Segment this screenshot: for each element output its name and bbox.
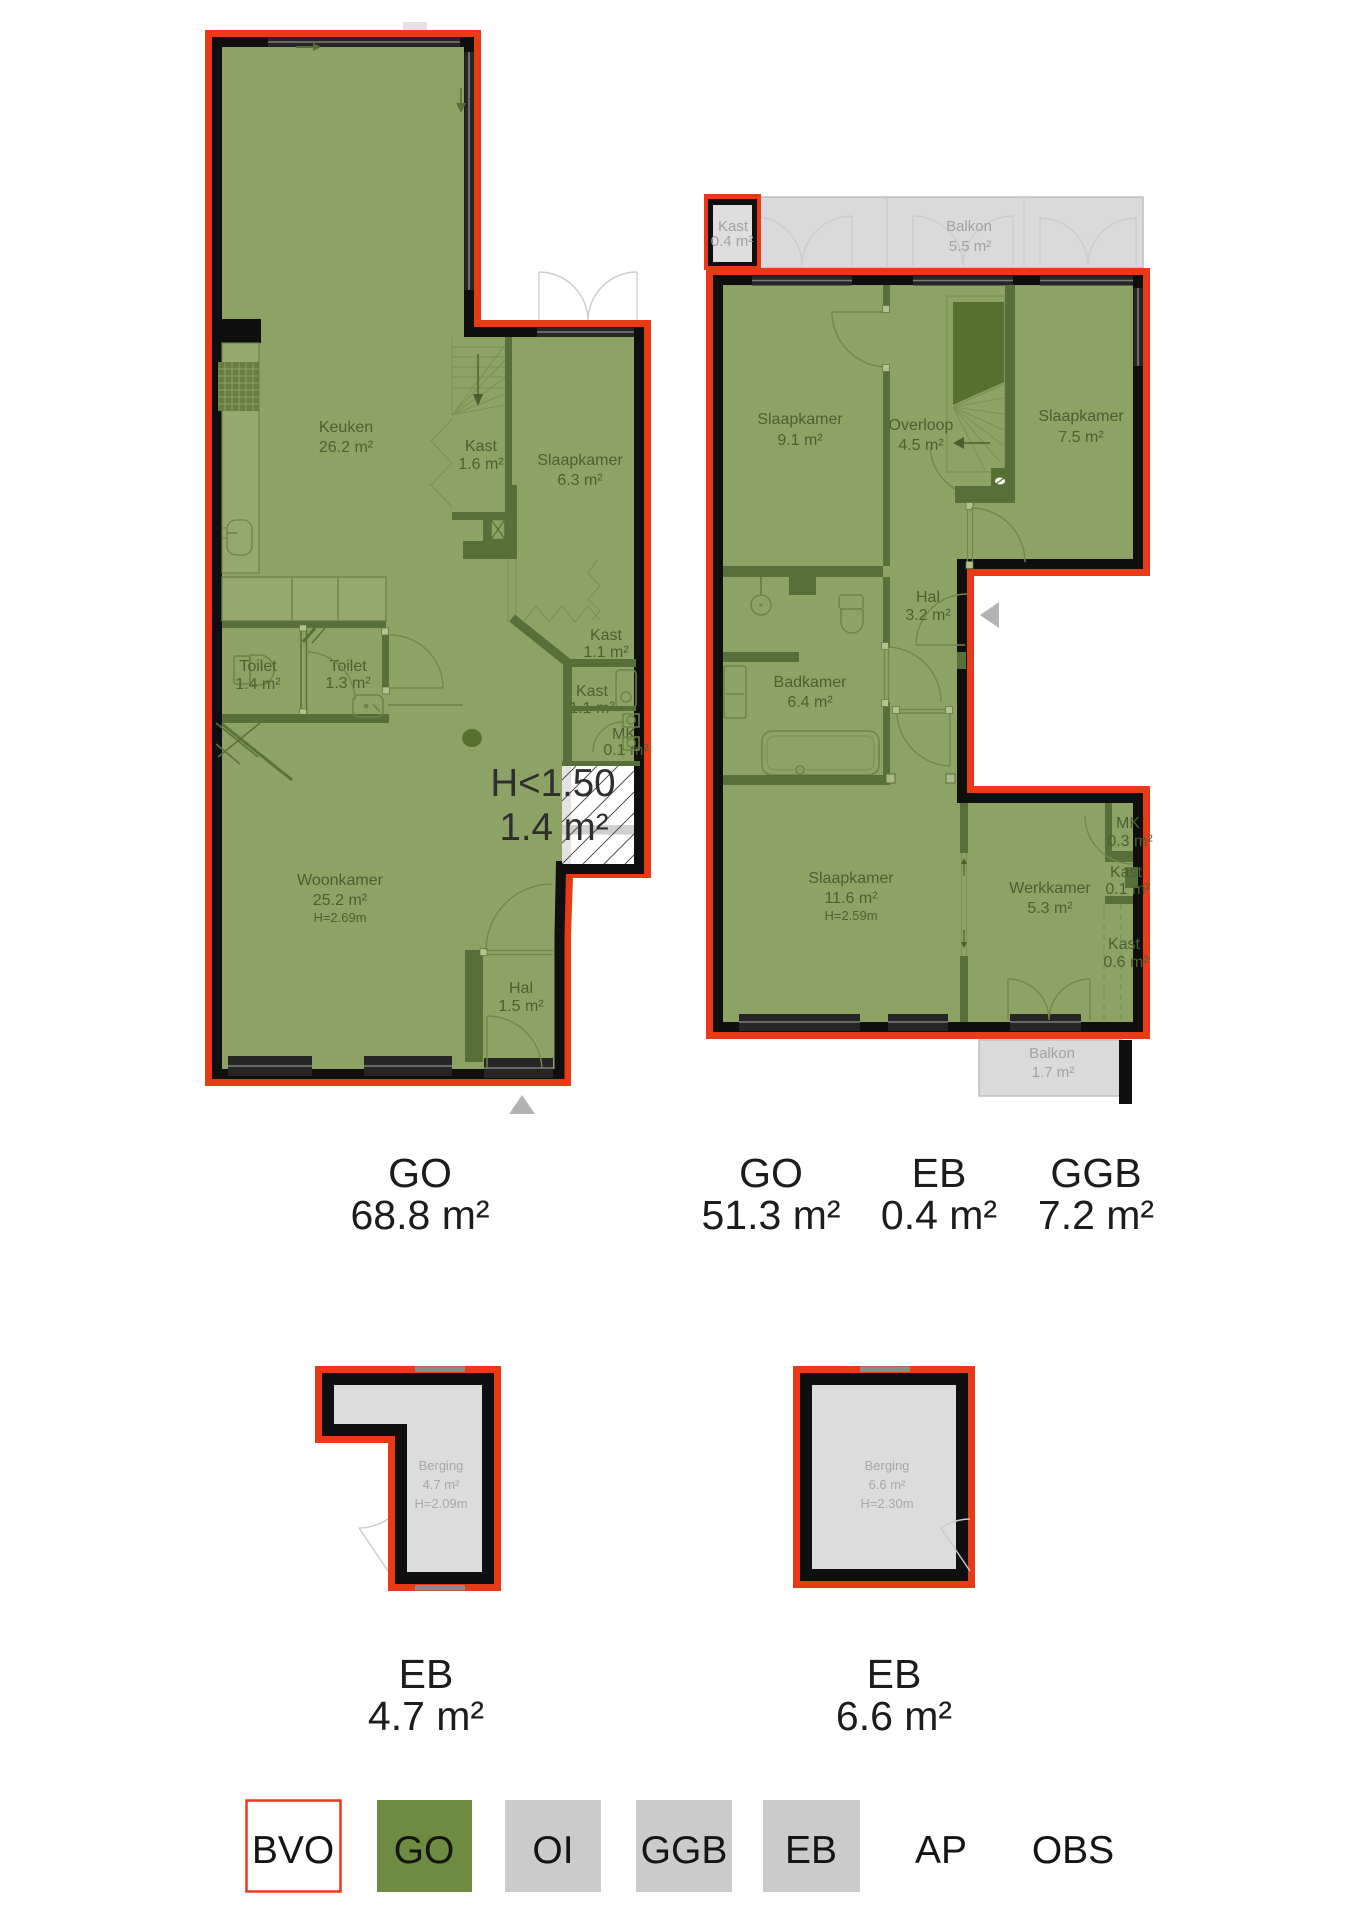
- svg-text:GO: GO: [394, 1829, 455, 1872]
- svg-text:Woonkamer: Woonkamer: [297, 872, 384, 889]
- svg-text:H<1.50: H<1.50: [490, 762, 615, 805]
- svg-text:Berging: Berging: [865, 1458, 910, 1473]
- svg-text:Keuken: Keuken: [319, 419, 373, 436]
- svg-text:1.6 m²: 1.6 m²: [458, 456, 504, 473]
- svg-text:OBS: OBS: [1032, 1829, 1114, 1872]
- svg-text:GO: GO: [388, 1150, 452, 1196]
- svg-text:Kast: Kast: [590, 627, 623, 644]
- svg-text:6.6 m²: 6.6 m²: [836, 1693, 952, 1739]
- svg-text:0.1 m²: 0.1 m²: [1105, 881, 1151, 898]
- svg-text:MK: MK: [612, 726, 636, 743]
- svg-text:GO: GO: [739, 1150, 803, 1196]
- svg-text:4.5 m²: 4.5 m²: [898, 437, 944, 454]
- svg-text:GGB: GGB: [641, 1829, 728, 1872]
- svg-text:Werkkamer: Werkkamer: [1009, 880, 1091, 897]
- svg-text:OI: OI: [532, 1829, 573, 1872]
- svg-text:Toilet: Toilet: [239, 658, 277, 675]
- svg-text:H=2.69m: H=2.69m: [313, 910, 366, 925]
- svg-text:4.7 m²: 4.7 m²: [368, 1693, 484, 1739]
- svg-text:Balkon: Balkon: [946, 218, 992, 235]
- svg-text:Slaapkamer: Slaapkamer: [757, 411, 843, 428]
- svg-text:1.4 m²: 1.4 m²: [235, 676, 281, 693]
- svg-text:GGB: GGB: [1050, 1150, 1141, 1196]
- svg-text:Toilet: Toilet: [329, 658, 367, 675]
- svg-text:MK: MK: [1116, 815, 1140, 832]
- svg-text:Slaapkamer: Slaapkamer: [537, 452, 623, 469]
- svg-text:0.4 m²: 0.4 m²: [881, 1192, 997, 1238]
- svg-text:Kast: Kast: [1108, 936, 1141, 953]
- svg-text:26.2 m²: 26.2 m²: [319, 439, 374, 456]
- svg-text:Kast: Kast: [465, 438, 498, 455]
- svg-text:1.3 m²: 1.3 m²: [325, 675, 371, 692]
- svg-text:6.6 m²: 6.6 m²: [869, 1477, 907, 1492]
- svg-text:EB: EB: [912, 1150, 967, 1196]
- svg-text:7.5 m²: 7.5 m²: [1058, 429, 1104, 446]
- svg-text:H=2.59m: H=2.59m: [824, 908, 877, 923]
- svg-text:1.5 m²: 1.5 m²: [498, 998, 544, 1015]
- svg-text:1.7 m²: 1.7 m²: [1032, 1064, 1075, 1081]
- svg-text:68.8 m²: 68.8 m²: [351, 1192, 490, 1238]
- svg-text:25.2 m²: 25.2 m²: [313, 892, 368, 909]
- svg-text:H=2.30m: H=2.30m: [860, 1496, 913, 1511]
- svg-text:0.6 m²: 0.6 m²: [1103, 954, 1149, 971]
- svg-text:Badkamer: Badkamer: [774, 674, 848, 691]
- svg-text:Kast: Kast: [1110, 864, 1143, 881]
- svg-text:Balkon: Balkon: [1029, 1045, 1075, 1062]
- svg-text:0.4 m²: 0.4 m²: [711, 233, 754, 250]
- svg-text:6.3 m²: 6.3 m²: [557, 472, 603, 489]
- svg-text:Hal: Hal: [509, 980, 533, 997]
- svg-text:EB: EB: [399, 1651, 454, 1697]
- svg-text:7.2 m²: 7.2 m²: [1038, 1192, 1154, 1238]
- svg-text:5.3 m²: 5.3 m²: [1027, 900, 1073, 917]
- svg-text:Berging: Berging: [419, 1458, 464, 1473]
- svg-text:5.5 m²: 5.5 m²: [949, 238, 992, 255]
- svg-text:6.4 m²: 6.4 m²: [787, 694, 833, 711]
- svg-text:4.7 m²: 4.7 m²: [423, 1477, 461, 1492]
- svg-text:0.3 m²: 0.3 m²: [1107, 833, 1153, 850]
- svg-text:H=2.09m: H=2.09m: [414, 1496, 467, 1511]
- svg-text:AP: AP: [915, 1829, 967, 1872]
- svg-text:EB: EB: [867, 1651, 922, 1697]
- svg-text:Hal: Hal: [916, 589, 940, 606]
- svg-text:11.6 m²: 11.6 m²: [824, 890, 878, 907]
- svg-text:EB: EB: [785, 1829, 837, 1872]
- svg-text:Slaapkamer: Slaapkamer: [1038, 408, 1124, 425]
- svg-text:3.2 m²: 3.2 m²: [905, 607, 951, 624]
- svg-text:1.1 m²: 1.1 m²: [583, 644, 629, 661]
- svg-text:1.4 m²: 1.4 m²: [499, 806, 608, 849]
- svg-text:51.3 m²: 51.3 m²: [702, 1192, 841, 1238]
- svg-text:Slaapkamer: Slaapkamer: [808, 870, 894, 887]
- svg-text:Kast: Kast: [576, 683, 609, 700]
- svg-text:BVO: BVO: [252, 1829, 334, 1872]
- svg-text:9.1 m²: 9.1 m²: [777, 432, 823, 449]
- svg-text:Overloop: Overloop: [889, 417, 954, 434]
